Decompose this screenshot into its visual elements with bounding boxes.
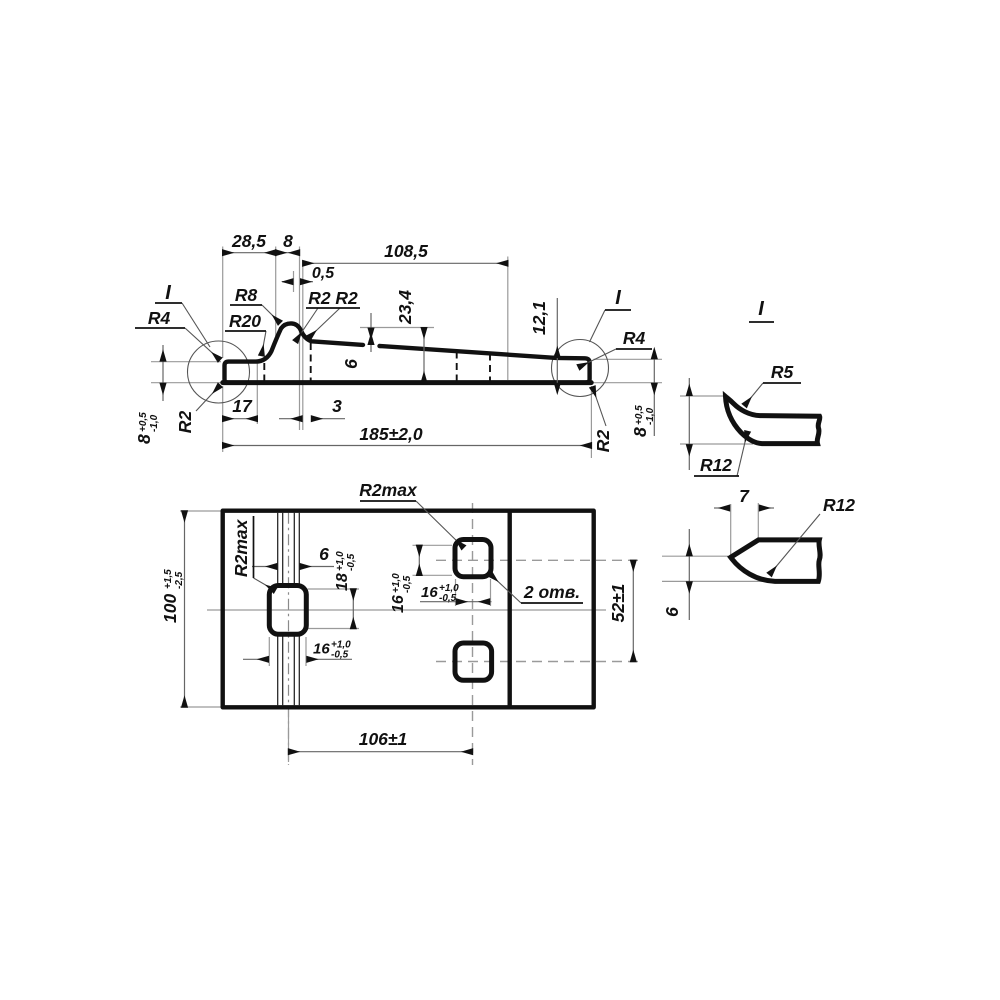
dim-3: 3 (332, 396, 342, 416)
radius-r12-top: R12 (700, 455, 732, 475)
dim-12-1: 12,1 (529, 301, 549, 335)
detail-b-profile (731, 540, 820, 582)
svg-text:-0,5: -0,5 (331, 650, 349, 661)
radius-r8: R8 (235, 285, 258, 305)
svg-text:+1,0: +1,0 (391, 573, 402, 593)
svg-text:16: 16 (390, 595, 407, 613)
radius-r12-bottom: R12 (823, 495, 855, 515)
dim-6: 6 (341, 359, 361, 369)
svg-text:16: 16 (313, 641, 330, 658)
svg-text:18: 18 (334, 573, 351, 591)
dim-0-5: 0,5 (312, 265, 335, 282)
svg-text:-2,5: -2,5 (174, 571, 185, 589)
dim-108-5: 108,5 (384, 241, 428, 261)
svg-text:-0,5: -0,5 (439, 593, 457, 604)
svg-text:+1,0: +1,0 (335, 551, 346, 571)
radius-r2-right: R2 (593, 430, 613, 453)
detail-i-profile (726, 397, 820, 444)
radius-r2-r2: R2 R2 (308, 288, 358, 308)
dim-100-tol: 100 +1,5 -2,5 (160, 569, 185, 623)
detail-view-i: I R5 R12 (680, 298, 820, 476)
r5-leader (745, 383, 764, 406)
dimension-lines-plan (185, 511, 634, 752)
extension-lines-plan (180, 511, 491, 762)
dim-16-bottom: 16 +1,0 -0,5 (313, 640, 351, 661)
detail-circle-right (552, 340, 609, 397)
dim-16-vertical: 16 +1,0 -0,5 (390, 573, 413, 613)
radius-r2max-left: R2max (231, 518, 251, 577)
svg-text:+1,5: +1,5 (163, 569, 174, 589)
svg-text:+0,5: +0,5 (138, 412, 149, 432)
svg-text:-1,0: -1,0 (149, 414, 160, 432)
svg-text:100: 100 (160, 594, 180, 623)
r12-top-leader (737, 432, 748, 477)
radius-r2max-top: R2max (359, 480, 418, 500)
dim-52: 52±1 (608, 584, 628, 623)
dim-17: 17 (232, 396, 253, 416)
plan-view: R2max R2max 6 18 +1,0 -0,5 16 +1,0 -0,5 … (160, 480, 641, 765)
svg-text:8: 8 (630, 427, 650, 437)
dim-185: 185±2,0 (359, 424, 422, 444)
svg-text:16: 16 (421, 584, 438, 601)
svg-text:8: 8 (134, 434, 154, 444)
svg-text:-0,5: -0,5 (402, 575, 413, 593)
detail-circle-left (188, 341, 250, 403)
svg-text:+0,5: +0,5 (634, 405, 645, 425)
r12-bottom-leader (770, 514, 821, 575)
plate-outline (223, 511, 594, 708)
dim-16-horizontal: 16 +1,0 -0,5 (421, 583, 459, 604)
svg-text:-0,5: -0,5 (346, 553, 357, 571)
dim-thickness-right: 8 +0,5 -1,0 (630, 405, 656, 437)
radius-r5: R5 (771, 362, 794, 382)
radius-r2-left: R2 (175, 411, 195, 434)
dim-18-tol: 18 +1,0 -0,5 (334, 551, 357, 591)
dim-6-detail: 6 (662, 607, 682, 617)
dim-8: 8 (283, 231, 293, 251)
radius-r20: R20 (229, 311, 261, 331)
detail-mark-left: I (165, 282, 171, 304)
radius-r4-right: R4 (623, 328, 646, 348)
radius-r4-left: R4 (148, 308, 171, 328)
top-view-profile: 28,5 8 108,5 0,5 23,4 6 12,1 17 3 185±2,… (134, 231, 662, 458)
detail-section-bottom: 7 R12 6 (662, 486, 855, 620)
dim-thickness-left: 8 +0,5 -1,0 (134, 412, 160, 444)
drawing-sheet: 28,5 8 108,5 0,5 23,4 6 12,1 17 3 185±2,… (0, 0, 1000, 1000)
svg-text:-1,0: -1,0 (645, 407, 656, 425)
technical-drawing-canvas: 28,5 8 108,5 0,5 23,4 6 12,1 17 3 185±2,… (0, 0, 1000, 1000)
dim-23-4: 23,4 (395, 290, 415, 325)
dim-28-5: 28,5 (231, 231, 266, 251)
detail-mark-right: I (615, 287, 621, 309)
detail-i-label: I (758, 298, 764, 320)
svg-text:R2max: R2max (231, 518, 251, 577)
dim-6-plan: 6 (319, 544, 329, 564)
dim-7: 7 (739, 486, 750, 506)
holes-note: 2 отв. (523, 582, 580, 602)
dim-106: 106±1 (359, 729, 408, 749)
hidden-edge-lines (264, 343, 490, 382)
